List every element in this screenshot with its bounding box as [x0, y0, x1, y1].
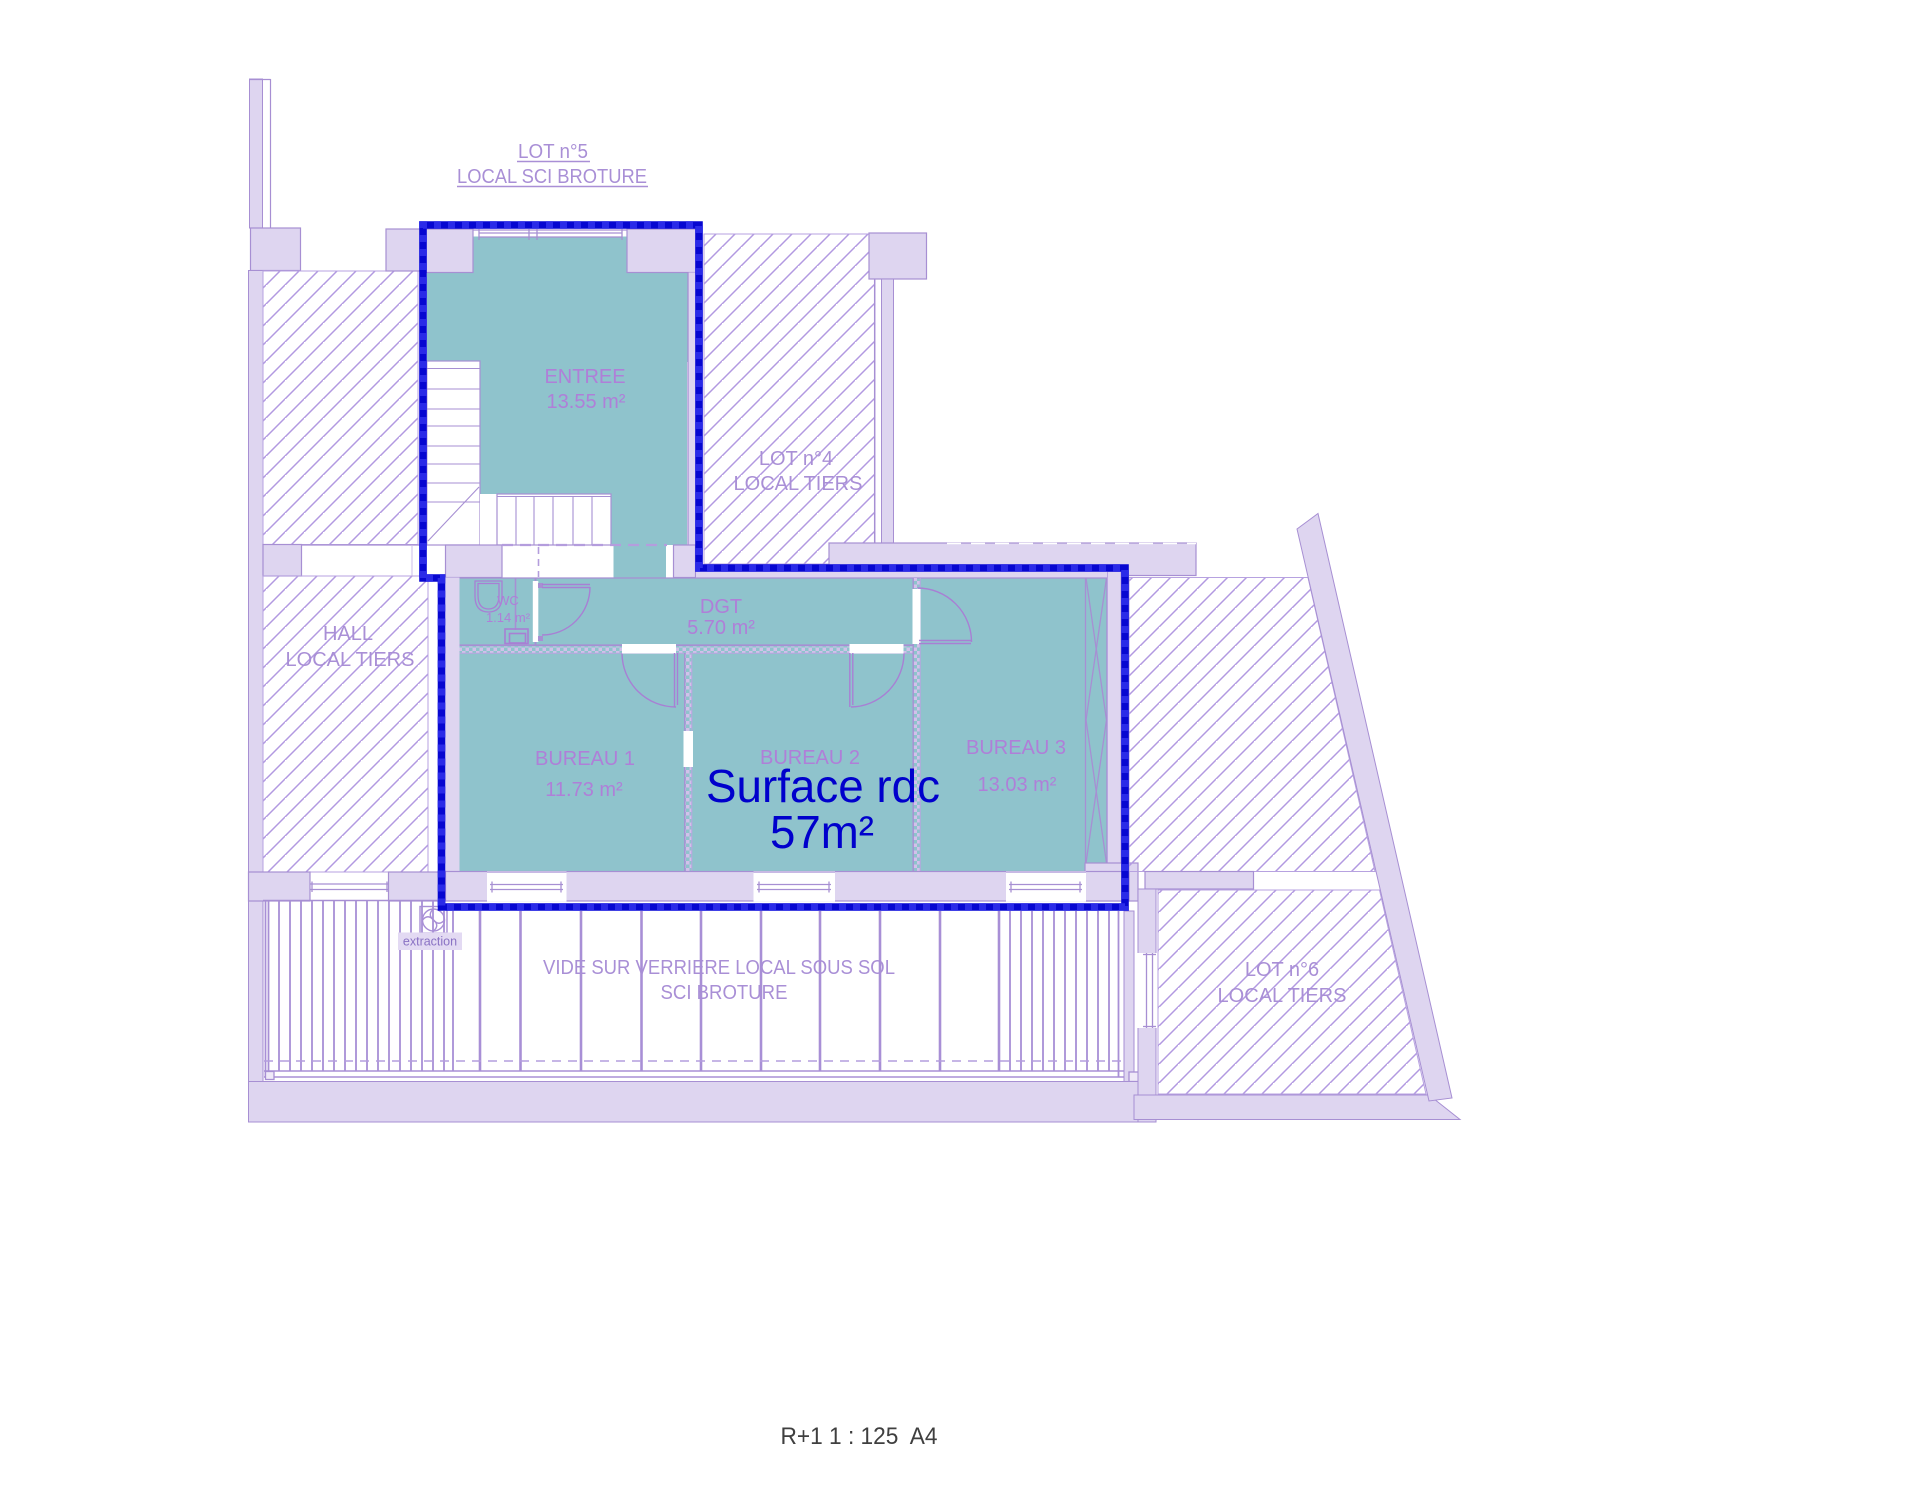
svg-text:LOT n°5: LOT n°5	[518, 140, 588, 163]
svg-text:VIDE SUR VERRIERE LOCAL SOUS S: VIDE SUR VERRIERE LOCAL SOUS SOL	[543, 956, 895, 979]
svg-text:13.55 m²: 13.55 m²	[547, 391, 626, 413]
svg-text:BUREAU 1: BUREAU 1	[535, 748, 635, 770]
svg-text:BUREAU 3: BUREAU 3	[966, 737, 1066, 759]
svg-text:LOCAL TIERS: LOCAL TIERS	[1218, 985, 1347, 1007]
svg-text:extraction: extraction	[403, 935, 457, 949]
svg-text:SCI BROTURE: SCI BROTURE	[661, 981, 788, 1004]
svg-text:WC: WC	[497, 593, 519, 608]
svg-text:LOCAL TIERS: LOCAL TIERS	[286, 649, 415, 671]
svg-text:LOT n°4: LOT n°4	[759, 448, 833, 470]
svg-text:ENTREE: ENTREE	[544, 366, 625, 388]
svg-text:1.14 m²: 1.14 m²	[486, 610, 531, 625]
svg-text:5.70 m²: 5.70 m²	[687, 617, 755, 639]
svg-text:HALL: HALL	[323, 623, 373, 645]
svg-text:Surface rdc: Surface rdc	[706, 760, 940, 812]
svg-text:LOCAL SCI BROTURE: LOCAL SCI BROTURE	[457, 165, 647, 188]
svg-text:LOT n°6: LOT n°6	[1245, 959, 1319, 981]
svg-text:LOCAL TIERS: LOCAL TIERS	[734, 473, 863, 495]
svg-text:R+1 1 : 125 A4: R+1 1 : 125 A4	[781, 1423, 938, 1450]
svg-text:DGT: DGT	[700, 596, 742, 618]
svg-text:11.73 m²: 11.73 m²	[545, 779, 623, 801]
svg-text:13.03 m²: 13.03 m²	[978, 774, 1057, 796]
svg-text:57m²: 57m²	[770, 806, 874, 858]
